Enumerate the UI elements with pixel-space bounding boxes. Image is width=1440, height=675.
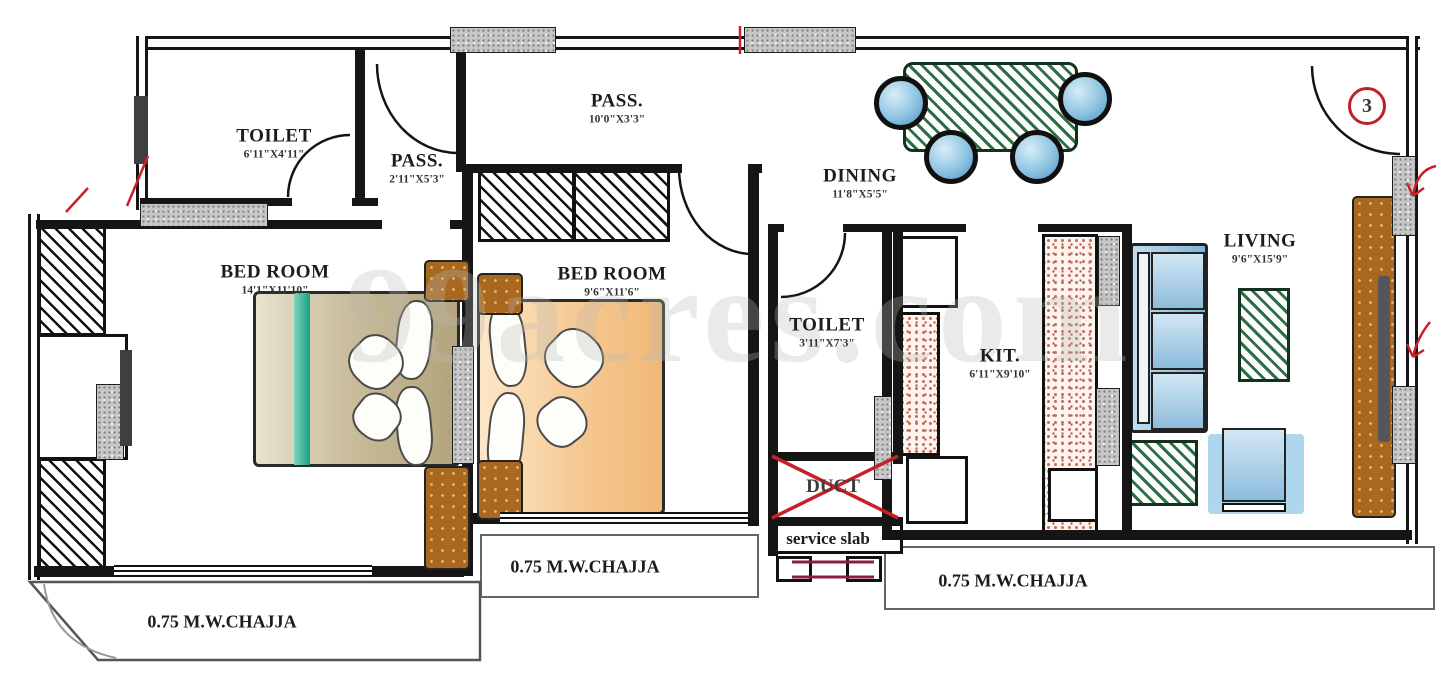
coffee-table bbox=[1238, 288, 1290, 382]
side-table bbox=[1128, 440, 1198, 506]
room-name: KIT. bbox=[969, 346, 1030, 368]
wardrobe bbox=[477, 273, 523, 315]
wardrobe bbox=[424, 466, 470, 570]
room-dims: 6'11"X9'10" bbox=[969, 369, 1030, 381]
column bbox=[1392, 386, 1416, 464]
label-chajja-right: 0.75 M.W.CHAJJA bbox=[938, 571, 1087, 592]
room-name: TOILET bbox=[236, 126, 312, 148]
room-dims: 9'6"X15'9" bbox=[1224, 254, 1297, 266]
room-name: DINING bbox=[823, 166, 897, 188]
dining-chair bbox=[1058, 72, 1112, 126]
window-louver bbox=[38, 458, 106, 574]
label-chajja-mid: 0.75 M.W.CHAJJA bbox=[510, 557, 659, 578]
dining-chair bbox=[924, 130, 978, 184]
bed-runner bbox=[294, 293, 310, 465]
wall-right-outer bbox=[1406, 36, 1418, 544]
window-louver bbox=[38, 224, 106, 336]
wall-bedroom1-left bbox=[28, 214, 40, 580]
kitchen-appliance bbox=[1048, 468, 1098, 522]
floor-plan: 99acres.com bbox=[0, 0, 1440, 675]
tv-panel bbox=[120, 350, 132, 446]
column bbox=[452, 346, 474, 464]
label-pass-2: PASS. 10'0"X3'3" bbox=[589, 91, 645, 126]
wall-block bbox=[134, 96, 148, 164]
red-slash-left2 bbox=[66, 188, 88, 212]
room-name: TOILET bbox=[789, 315, 865, 337]
room-name: PASS. bbox=[589, 91, 645, 113]
closet-divider bbox=[572, 170, 576, 240]
wall bbox=[768, 224, 778, 556]
column bbox=[874, 396, 892, 480]
label-toilet-2: TOILET 3'11"X7'3" bbox=[789, 315, 865, 350]
wall bbox=[882, 224, 892, 540]
label-dining: DINING 11'8"X5'5" bbox=[823, 166, 897, 201]
door-arc-bedroom2 bbox=[679, 168, 753, 254]
label-pass-1: PASS. 2'11"X5'3" bbox=[389, 151, 445, 186]
column bbox=[140, 203, 268, 227]
window-sill bbox=[500, 512, 748, 525]
room-dims: 10'0"X3'3" bbox=[589, 114, 645, 126]
label-living: LIVING 9'6"X15'9" bbox=[1224, 231, 1297, 266]
dining-chair bbox=[874, 76, 928, 130]
wall bbox=[456, 50, 466, 172]
wardrobe bbox=[477, 460, 523, 520]
wall bbox=[882, 224, 966, 232]
column bbox=[1392, 156, 1416, 236]
armchair-front bbox=[1222, 503, 1286, 512]
dining-chair bbox=[1010, 130, 1064, 184]
room-dims: 11'8"X5'5" bbox=[823, 189, 897, 201]
sofa-cushion bbox=[1151, 252, 1205, 310]
door-arc-pass bbox=[377, 64, 458, 153]
room-name: BED ROOM bbox=[220, 262, 329, 284]
unit-number-badge: 3 bbox=[1348, 87, 1386, 125]
slab-support bbox=[846, 556, 882, 582]
label-kitchen: KIT. 6'11"X9'10" bbox=[969, 346, 1030, 381]
window-sill bbox=[114, 565, 372, 578]
label-chajja-left: 0.75 M.W.CHAJJA bbox=[147, 612, 296, 633]
sofa-backrest bbox=[1137, 252, 1150, 424]
wall bbox=[355, 50, 365, 206]
column bbox=[1098, 236, 1120, 306]
room-dims: 9'6"X11'6" bbox=[557, 287, 666, 299]
wall bbox=[748, 164, 759, 526]
label-bedroom-2: BED ROOM 9'6"X11'6" bbox=[557, 264, 666, 299]
door-arc-toilet2 bbox=[781, 233, 845, 297]
kitchen-platform bbox=[894, 236, 958, 308]
slab-support bbox=[776, 556, 812, 582]
label-toilet-1: TOILET 6'11"X4'11" bbox=[236, 126, 312, 161]
wall bbox=[768, 224, 784, 232]
label-duct: DUCT bbox=[806, 476, 860, 498]
room-dims: 3'11"X7'3" bbox=[789, 338, 865, 350]
room-name: LIVING bbox=[1224, 231, 1297, 253]
kitchen-sink bbox=[906, 456, 968, 524]
room-dims: 6'11"X4'11" bbox=[236, 149, 312, 161]
room-name: PASS. bbox=[389, 151, 445, 173]
label-bedroom-1: BED ROOM 14'1"X11'10" bbox=[220, 262, 329, 297]
column bbox=[450, 27, 556, 53]
room-name: BED ROOM bbox=[557, 264, 666, 286]
armchair-cushion bbox=[1222, 428, 1286, 502]
wall bbox=[882, 530, 1412, 540]
column bbox=[1096, 388, 1120, 466]
sofa-cushion bbox=[1151, 372, 1205, 430]
tv-panel bbox=[1378, 276, 1390, 442]
room-dims: 14'1"X11'10" bbox=[220, 285, 329, 297]
chajja-curve bbox=[44, 584, 116, 658]
wardrobe bbox=[424, 260, 470, 302]
wall bbox=[1122, 224, 1132, 540]
wall bbox=[893, 224, 903, 464]
label-service-slab: service slab bbox=[786, 529, 870, 549]
sofa-cushion bbox=[1151, 312, 1205, 370]
column bbox=[744, 27, 856, 53]
wall bbox=[1038, 224, 1132, 232]
room-dims: 2'11"X5'3" bbox=[389, 174, 445, 186]
